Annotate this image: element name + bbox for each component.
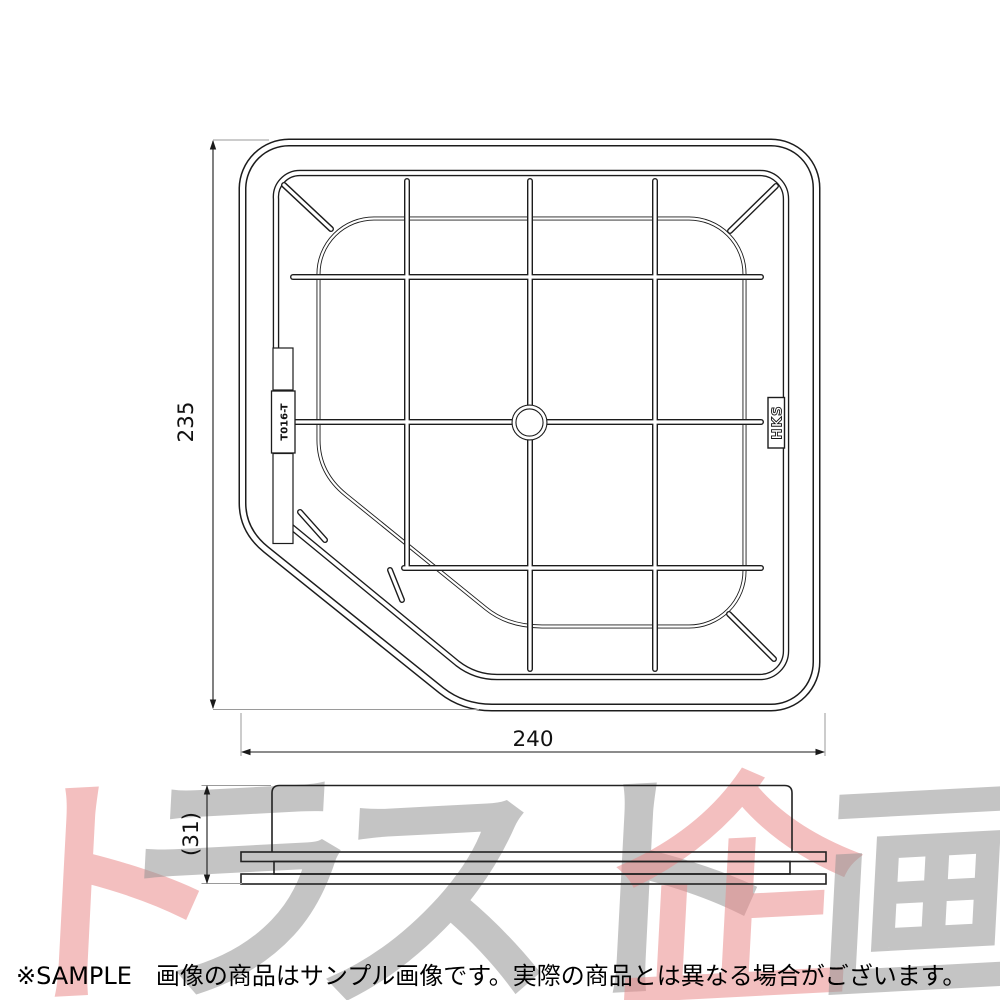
side-mid-band: [274, 862, 790, 875]
height-dim-label: 235: [174, 401, 199, 442]
part-number-label: T016-T: [280, 403, 291, 440]
side-flange-top: [241, 852, 826, 862]
width-dim-label: 240: [512, 727, 553, 752]
side-body-outline: [272, 786, 792, 853]
side-flange-bottom: [241, 874, 826, 884]
dimension-width: 240: [241, 713, 825, 756]
brand-label: HKS: [769, 405, 785, 439]
sample-disclaimer-caption: ※SAMPLE 画像の商品はサンプル画像です。実際の商品とは異なる場合がございま…: [16, 956, 966, 991]
product-image: ト ラ ス ト 企 画: [0, 0, 1000, 1000]
center-hole: [514, 407, 545, 438]
dimension-thickness: (31): [179, 785, 271, 884]
side-view: [241, 786, 826, 885]
top-view: T016-T HKS 235: [174, 140, 825, 756]
part-number-tabs: T016-T: [272, 348, 296, 544]
brand-plate: HKS: [768, 398, 785, 449]
thickness-dim-label: (31): [179, 812, 204, 856]
technical-drawing: T016-T HKS 235: [0, 0, 1000, 1000]
